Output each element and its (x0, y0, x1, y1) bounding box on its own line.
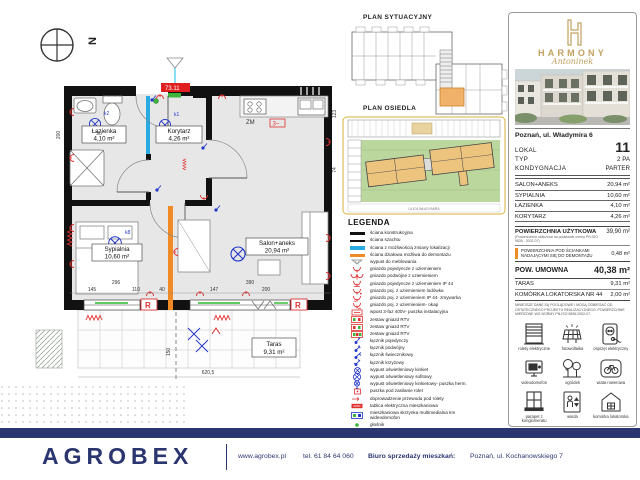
svg-text:390: 390 (246, 280, 255, 286)
street-label: ULICA WŁADYMIRA (408, 207, 440, 211)
lokal-number: 11 (615, 140, 630, 154)
entrance-number: 73.11 (165, 86, 180, 92)
svg-text:20,94 m²: 20,94 m² (265, 248, 289, 255)
svg-text:k2: k2 (104, 111, 110, 117)
svg-text:150: 150 (166, 348, 172, 357)
svg-text:R: R (145, 301, 151, 310)
demountable-marker (515, 248, 518, 259)
feature-videodomofon: videodomofon (515, 356, 553, 385)
footer-band (0, 428, 640, 438)
legend-title: LEGENDA (348, 218, 506, 227)
legend-socket-ip44-symbol (348, 280, 366, 287)
svg-text:9,31 m²: 9,31 m² (264, 349, 285, 356)
feature-winda: winda (553, 390, 591, 423)
parking-strip (348, 120, 500, 137)
unit-address: Poznań, ul. Władymira 6 (515, 128, 630, 139)
legend-multimedia-box-symbol (348, 412, 366, 419)
phase-label: 3~ (273, 122, 280, 128)
typ-row: TYP 2 PA (515, 155, 630, 164)
legend-wall-demountable-symbol (348, 254, 366, 257)
legend-socket-fridge-symbol (348, 288, 366, 295)
legend-3phase-symbol (348, 309, 366, 316)
relocatable-wall (146, 96, 150, 154)
zm-label: ZM (246, 120, 255, 126)
legend-socket-double-symbol (348, 273, 366, 280)
footer-divider (226, 444, 227, 470)
area-row-salon: SALON+ANEKS 20,94 m² (515, 180, 630, 191)
situational-plan (340, 24, 508, 116)
svg-text:200: 200 (262, 287, 271, 293)
elect-fittings-icon (599, 322, 623, 346)
svg-text:123: 123 (332, 110, 338, 119)
stairwell (440, 50, 452, 88)
features-grid: rolety elektryczne fotowoltaika osprzęt … (515, 322, 630, 423)
storage-room-icon (599, 390, 623, 414)
svg-text:k1: k1 (174, 112, 180, 118)
svg-text:40: 40 (159, 287, 165, 293)
situational-plan-title: PLAN SYTUACYJNY (363, 14, 432, 21)
legend-furnishing-outlet-symbol (348, 259, 366, 265)
legend-rtv-symbol (348, 316, 366, 323)
storage-row: KOMÓRKA LOKATORSKA NR 44 2,00 m² (515, 290, 630, 301)
feature-fotowoltaika: fotowoltaika (553, 322, 591, 351)
footer-phone: tel. 61 84 64 060 (303, 453, 354, 460)
feature-rolety: rolety elektryczne (515, 322, 553, 351)
feature-komorka: komórka lokatorska (592, 390, 630, 423)
legend-wall-relocatable-symbol (348, 246, 366, 249)
footer: AGROBEX www.agrobex.pl tel. 61 84 64 060… (0, 438, 640, 480)
svg-text:Salon+aneks: Salon+aneks (259, 240, 295, 247)
estate-plan: ULICA WŁADYMIRA (340, 115, 508, 217)
brand-script: Antoninek (515, 57, 630, 66)
garage-row (348, 140, 361, 202)
usable-area-section: POWIERZCHNIA UŻYTKOWA (Powierzchnia obli… (515, 226, 630, 301)
usable-area-note: (Powierzchnia obliczona na podstawie nor… (515, 235, 601, 243)
solar-panel-icon (560, 322, 584, 346)
svg-text:74: 74 (332, 167, 338, 173)
kondygnacja-row: KONDYGNACJA PARTER (515, 164, 630, 173)
legend-wall-shaft-symbol (348, 240, 366, 242)
legend-blind-wiring-symbol (348, 396, 366, 402)
lokal-row: LOKAL 11 (515, 139, 630, 155)
feature-ogrodek: ogródek (553, 356, 591, 385)
svg-text:90: 90 (96, 131, 102, 137)
area-row-sypialnia: SYPIALNIA 10,60 m² (515, 191, 630, 202)
demountable-wall (168, 206, 173, 310)
contract-area-value: 40,38 m² (594, 265, 630, 275)
svg-text:200: 200 (56, 131, 62, 140)
window-sill-icon (522, 390, 546, 414)
flyer-page: N (0, 0, 640, 480)
terrace-row: TARAS 9,31 m² (515, 279, 630, 290)
footer-office-label: Biuro sprzedaży mieszkań: (368, 453, 455, 460)
svg-text:Korytarz: Korytarz (167, 128, 190, 135)
highlighted-unit (440, 88, 464, 106)
footer-office-address: Poznań, ul. Kochanowskiego 7 (470, 453, 563, 460)
estate-plan-title: PLAN OSIEDLA (363, 105, 416, 112)
svg-text:620,5: 620,5 (202, 370, 215, 376)
brand-block: HARMONY Antoninek (515, 18, 630, 66)
contract-area-row: POW. UMOWNA 40,38 m² (515, 262, 630, 279)
bike-shelter-icon (599, 356, 623, 380)
elevator-icon (560, 390, 584, 414)
unit-info-card: HARMONY Antoninek Poznań, ul. Władymira … (508, 12, 637, 427)
svg-text:Sypialnia: Sypialnia (104, 246, 130, 253)
planting-area (36, 330, 62, 368)
usable-area-value: 39,90 m² (606, 229, 630, 243)
svg-text:147: 147 (210, 287, 219, 293)
svg-text:296: 296 (112, 280, 121, 286)
svg-text:10,60 m²: 10,60 m² (105, 254, 129, 261)
svg-text:110: 110 (132, 287, 140, 293)
legend-socket-dishwasher-symbol (348, 295, 366, 302)
vent-grill (294, 86, 332, 96)
svg-text:k8: k8 (125, 230, 131, 236)
north-label: N (87, 37, 99, 45)
disclaimer: NINIEJSZE DANE SĄ POGLĄDOWE I MOGĄ ODBIE… (515, 303, 630, 317)
demountable-area-row: POWIERZCHNIA POD ŚCIANKAMI NADAJĄCYMI SI… (515, 246, 630, 262)
video-intercom-icon (522, 356, 546, 380)
building-photo (515, 69, 630, 125)
legend-electrical-panel-symbol (348, 403, 366, 409)
grass-area (0, 386, 190, 428)
svg-text:R: R (295, 301, 301, 310)
legend: LEGENDA ściana konstrukcyjna ściana szac… (348, 218, 506, 436)
legend-blind-box-symbol (348, 388, 366, 395)
area-row-korytarz: KORYTARZ 4,26 m² (515, 212, 630, 223)
svg-text:145: 145 (88, 287, 97, 293)
legend-socket-single-symbol (348, 266, 366, 273)
legend-socket-hood-symbol (348, 302, 366, 309)
feature-parapet: parapet z konglomeratu (515, 390, 553, 423)
agrobex-logo: AGROBEX (42, 443, 193, 470)
electric-blinds-icon (522, 322, 546, 346)
harmony-logo-icon (558, 18, 588, 46)
north-arrow: N (41, 29, 99, 61)
legend-wall-structural-symbol (348, 232, 366, 235)
feature-wiata: wiata rowerowa (592, 356, 630, 385)
garden-icon (560, 356, 584, 380)
floor-plan: N (0, 0, 340, 428)
footer-website: www.agrobex.pl (238, 453, 286, 460)
area-row-lazienka: ŁAZIENKA 4,10 m² (515, 201, 630, 212)
divider (515, 175, 630, 179)
feature-osprzet: osprzęt elektryczny (592, 322, 630, 351)
legend-rtv-symbol (348, 324, 366, 331)
svg-text:4,26 m²: 4,26 m² (169, 136, 190, 143)
svg-text:Taras: Taras (266, 341, 281, 348)
